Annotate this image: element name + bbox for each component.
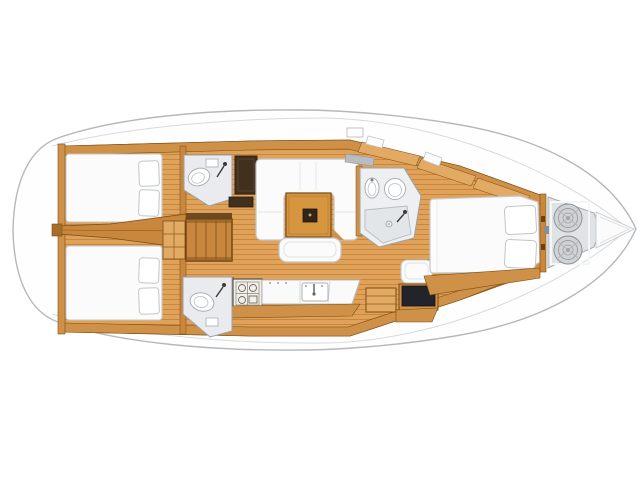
forward-head-tap	[371, 179, 374, 182]
aft-head-starboard-cistern	[206, 318, 218, 326]
windlass-fitting	[544, 226, 549, 234]
bulkhead-fitting-2	[541, 244, 545, 250]
sink-knob-2	[321, 285, 323, 287]
stair-rail-bottom	[186, 257, 232, 261]
aft-head-port-cistern	[206, 159, 218, 167]
floor-plan-canvas	[0, 0, 640, 480]
dark-shelf	[229, 197, 253, 207]
counter-knob-2	[277, 282, 279, 284]
companionway-stairs	[186, 219, 232, 261]
forward-head-shower-head	[403, 210, 407, 214]
stair-rail-top	[186, 219, 232, 223]
shower-drain-dot	[388, 223, 390, 225]
nav-base-step	[396, 308, 438, 322]
aft-bulkhead	[58, 144, 65, 334]
forward-cabin-pillow-2	[504, 239, 536, 269]
galley-lower-ledge	[230, 304, 360, 318]
aft-cabin-port-pillow-1	[139, 161, 160, 187]
galley	[229, 277, 360, 318]
deck-hatch-small	[347, 128, 363, 137]
counter-knob-1	[269, 282, 271, 284]
nav-cabinet	[366, 288, 396, 312]
yacht-floor-plan	[0, 0, 640, 480]
aft-cabin-port-pillow-2	[139, 190, 160, 217]
aft-head-starboard-shower-head	[222, 283, 226, 287]
forward-cabin	[424, 194, 546, 295]
forward-cabin-pillow-1	[504, 205, 536, 235]
saloon-table-center-dot	[309, 214, 312, 217]
sink-knob-1	[305, 285, 307, 287]
bulkhead-fitting-1	[541, 216, 545, 222]
rope-coil-2	[554, 236, 582, 264]
rope-coil-1	[554, 204, 582, 232]
aft-head-port-shower-head	[223, 162, 227, 166]
aft-cabin-starboard-pillow-1	[139, 258, 160, 284]
counter-knob-3	[285, 282, 287, 284]
rudder-post-block	[52, 224, 62, 236]
sink-faucet-base	[312, 292, 315, 295]
companionway-hatch	[186, 213, 232, 219]
aft-cabin-starboard-pillow-2	[139, 288, 160, 315]
